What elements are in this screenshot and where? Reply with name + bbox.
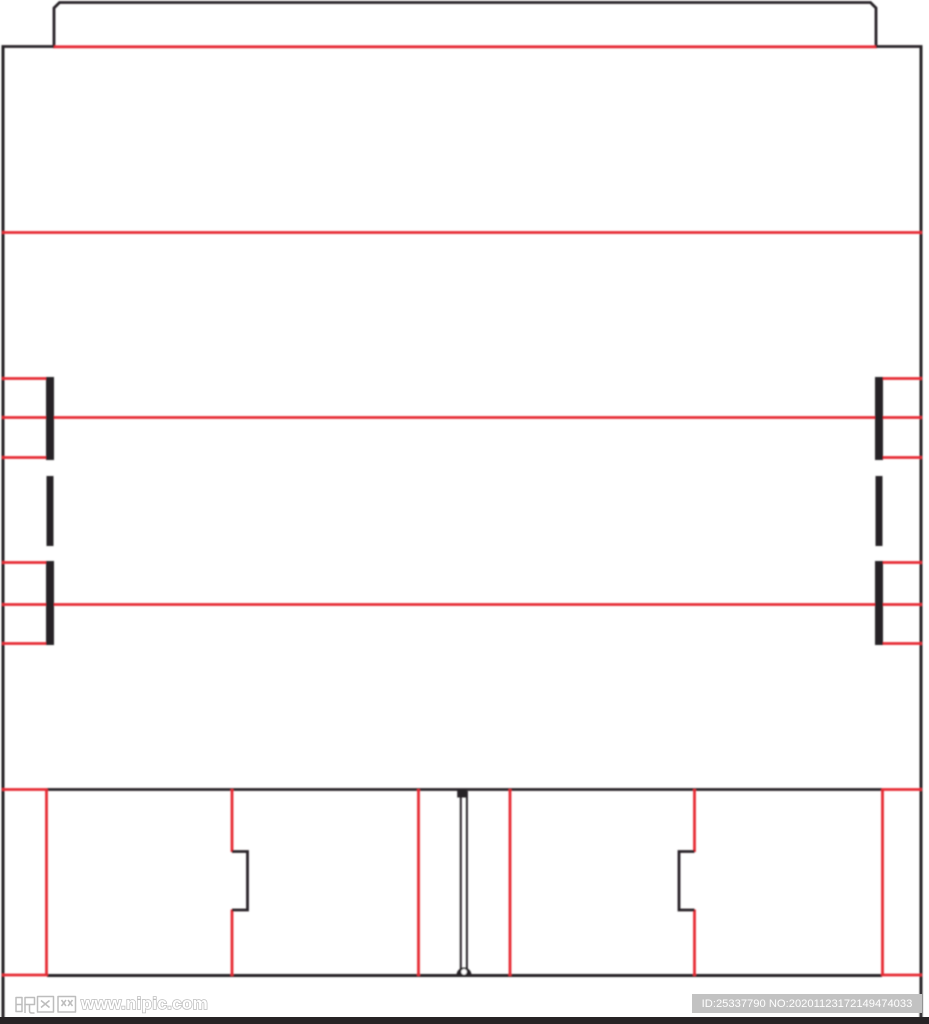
svg-text:ID:25337790 NO:202011231721494: ID:25337790 NO:20201123172149474033 (702, 998, 913, 1010)
svg-text:www.nipic.com: www.nipic.com (80, 994, 208, 1013)
